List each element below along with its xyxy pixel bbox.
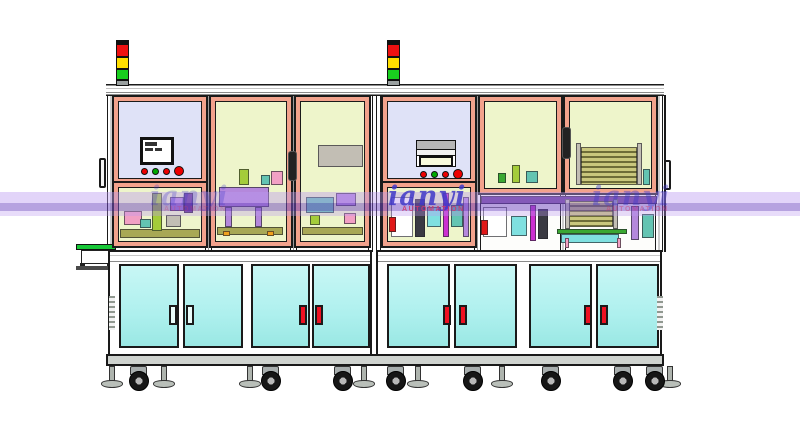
cabinet-left — [108, 250, 372, 356]
machinery-block — [223, 231, 230, 236]
machinery-block — [344, 213, 356, 224]
side-vent-left — [109, 296, 115, 330]
machinery-zone-left-1 — [120, 191, 200, 242]
machinery-block — [166, 215, 181, 227]
cabinet-door — [387, 264, 450, 348]
side-vent-right — [657, 296, 663, 330]
machinery-block — [451, 205, 463, 227]
machine-top-beam — [106, 84, 664, 96]
door-handle-red — [459, 305, 467, 325]
leveling-foot — [406, 366, 430, 392]
machinery-block — [306, 197, 334, 213]
tower-base — [387, 80, 400, 86]
machinery-block — [184, 193, 193, 213]
tower-light-green — [387, 69, 400, 80]
machinery-block — [511, 216, 527, 236]
machine-base-rail — [106, 354, 664, 366]
caster-wheel — [460, 366, 486, 394]
machinery-zone-right-2 — [486, 103, 555, 187]
machine-render-scene: ianyi AUTOMATION ianyi AUTOMATION ianyi … — [0, 0, 800, 438]
machinery-block — [336, 193, 356, 206]
caster-wheel — [330, 366, 356, 394]
hmi-screen-left — [140, 137, 174, 165]
machinery-block — [631, 206, 639, 240]
caster-wheel — [642, 366, 668, 394]
hmi-button-row-left — [141, 166, 184, 176]
machinery-block — [261, 175, 270, 185]
machinery-block — [255, 207, 262, 227]
hmi-top-band — [417, 141, 455, 150]
machinery-block — [565, 238, 569, 248]
machinery-zone-right-1 — [389, 191, 469, 242]
hmi-screen-right — [416, 140, 456, 167]
door-hinge-icon — [289, 152, 296, 180]
machinery-block — [170, 197, 184, 211]
machinery-block — [617, 238, 621, 248]
hmi-emergency-stop-button — [453, 169, 463, 179]
machinery-block — [565, 199, 570, 229]
caster-wheel — [258, 366, 284, 394]
machinery-block — [140, 219, 151, 228]
machinery-zone-left-3 — [302, 103, 363, 240]
module-junction-post — [368, 95, 383, 252]
machinery-block — [569, 201, 613, 227]
caster-wheel — [383, 366, 409, 394]
tower-light-yellow — [387, 57, 400, 69]
door-handle-white — [169, 305, 177, 325]
hmi-button-red — [163, 168, 170, 175]
tower-light-yellow — [116, 57, 129, 69]
door-handle-red — [299, 305, 307, 325]
side-handle-right — [664, 160, 671, 190]
tower-light-red — [116, 44, 129, 57]
door-handle-red — [315, 305, 323, 325]
hmi-button-row-right — [420, 169, 463, 179]
caster-wheel — [538, 366, 564, 394]
door-handle-red — [600, 305, 608, 325]
machinery-block — [538, 209, 548, 239]
machinery-block — [152, 193, 162, 231]
machinery-block — [310, 215, 320, 225]
machinery-block — [463, 197, 469, 237]
machinery-block — [498, 173, 506, 183]
door-handle-red — [584, 305, 592, 325]
machinery-block — [561, 234, 619, 243]
hmi-display — [419, 156, 453, 167]
leveling-foot — [490, 366, 514, 392]
machinery-block — [643, 169, 650, 185]
signal-tower-left — [116, 40, 129, 86]
machinery-block — [302, 227, 363, 235]
caster-wheel — [126, 366, 152, 394]
machinery-block — [526, 171, 538, 183]
tower-light-green — [116, 69, 129, 80]
machinery-block — [225, 207, 232, 227]
machinery-block — [613, 199, 618, 229]
machinery-block — [415, 199, 425, 237]
machinery-block — [389, 217, 396, 232]
machinery-block — [576, 143, 581, 185]
machinery-zone-left-2 — [217, 103, 285, 240]
tower-base — [116, 80, 129, 86]
machinery-zone-right-lower — [481, 196, 657, 248]
side-handle-left — [99, 158, 106, 188]
machinery-block — [271, 171, 283, 185]
hmi-button-red — [442, 171, 449, 178]
cabinet-door — [529, 264, 592, 348]
hmi-button-green — [152, 168, 159, 175]
signal-tower-right — [387, 40, 400, 86]
caster-wheel — [610, 366, 636, 394]
machinery-block — [219, 187, 269, 207]
machinery-block — [637, 143, 642, 185]
cabinet-right — [376, 250, 662, 356]
machinery-block — [512, 165, 520, 183]
machinery-block — [239, 169, 249, 185]
machinery-block — [443, 193, 449, 237]
door-hinge-icon — [563, 128, 570, 158]
machinery-block — [642, 214, 654, 238]
hmi-button-red — [141, 168, 148, 175]
machinery-block — [427, 207, 441, 227]
leveling-foot — [100, 366, 124, 392]
hmi-button-green — [431, 171, 438, 178]
door-handle-white — [186, 305, 194, 325]
machinery-zone-right-3 — [571, 103, 650, 187]
machinery-block — [481, 220, 488, 235]
undercarriage — [0, 366, 800, 396]
machinery-block — [267, 231, 274, 236]
door-handle-red — [443, 305, 451, 325]
conveyor-body — [81, 250, 110, 264]
hmi-emergency-stop-button — [174, 166, 184, 176]
machinery-block — [530, 205, 536, 241]
machinery-block — [318, 145, 363, 167]
tower-light-red — [387, 44, 400, 57]
machinery-block — [581, 147, 637, 185]
leveling-foot — [152, 366, 176, 392]
hmi-button-red — [420, 171, 427, 178]
